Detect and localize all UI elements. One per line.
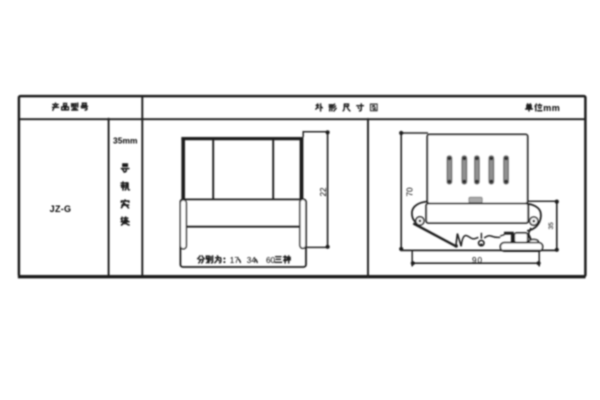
- svg-text:22: 22: [319, 187, 328, 197]
- svg-text:JZ-G: JZ-G: [50, 204, 72, 214]
- svg-text:70: 70: [406, 187, 415, 197]
- svg-text:60: 60: [266, 256, 276, 265]
- svg-text:35: 35: [548, 222, 555, 230]
- svg-text:17: 17: [230, 256, 240, 265]
- svg-text:90: 90: [472, 256, 483, 265]
- svg-text:34: 34: [247, 256, 257, 265]
- svg-text:35mm: 35mm: [113, 136, 138, 146]
- svg-text:mm: mm: [543, 103, 560, 113]
